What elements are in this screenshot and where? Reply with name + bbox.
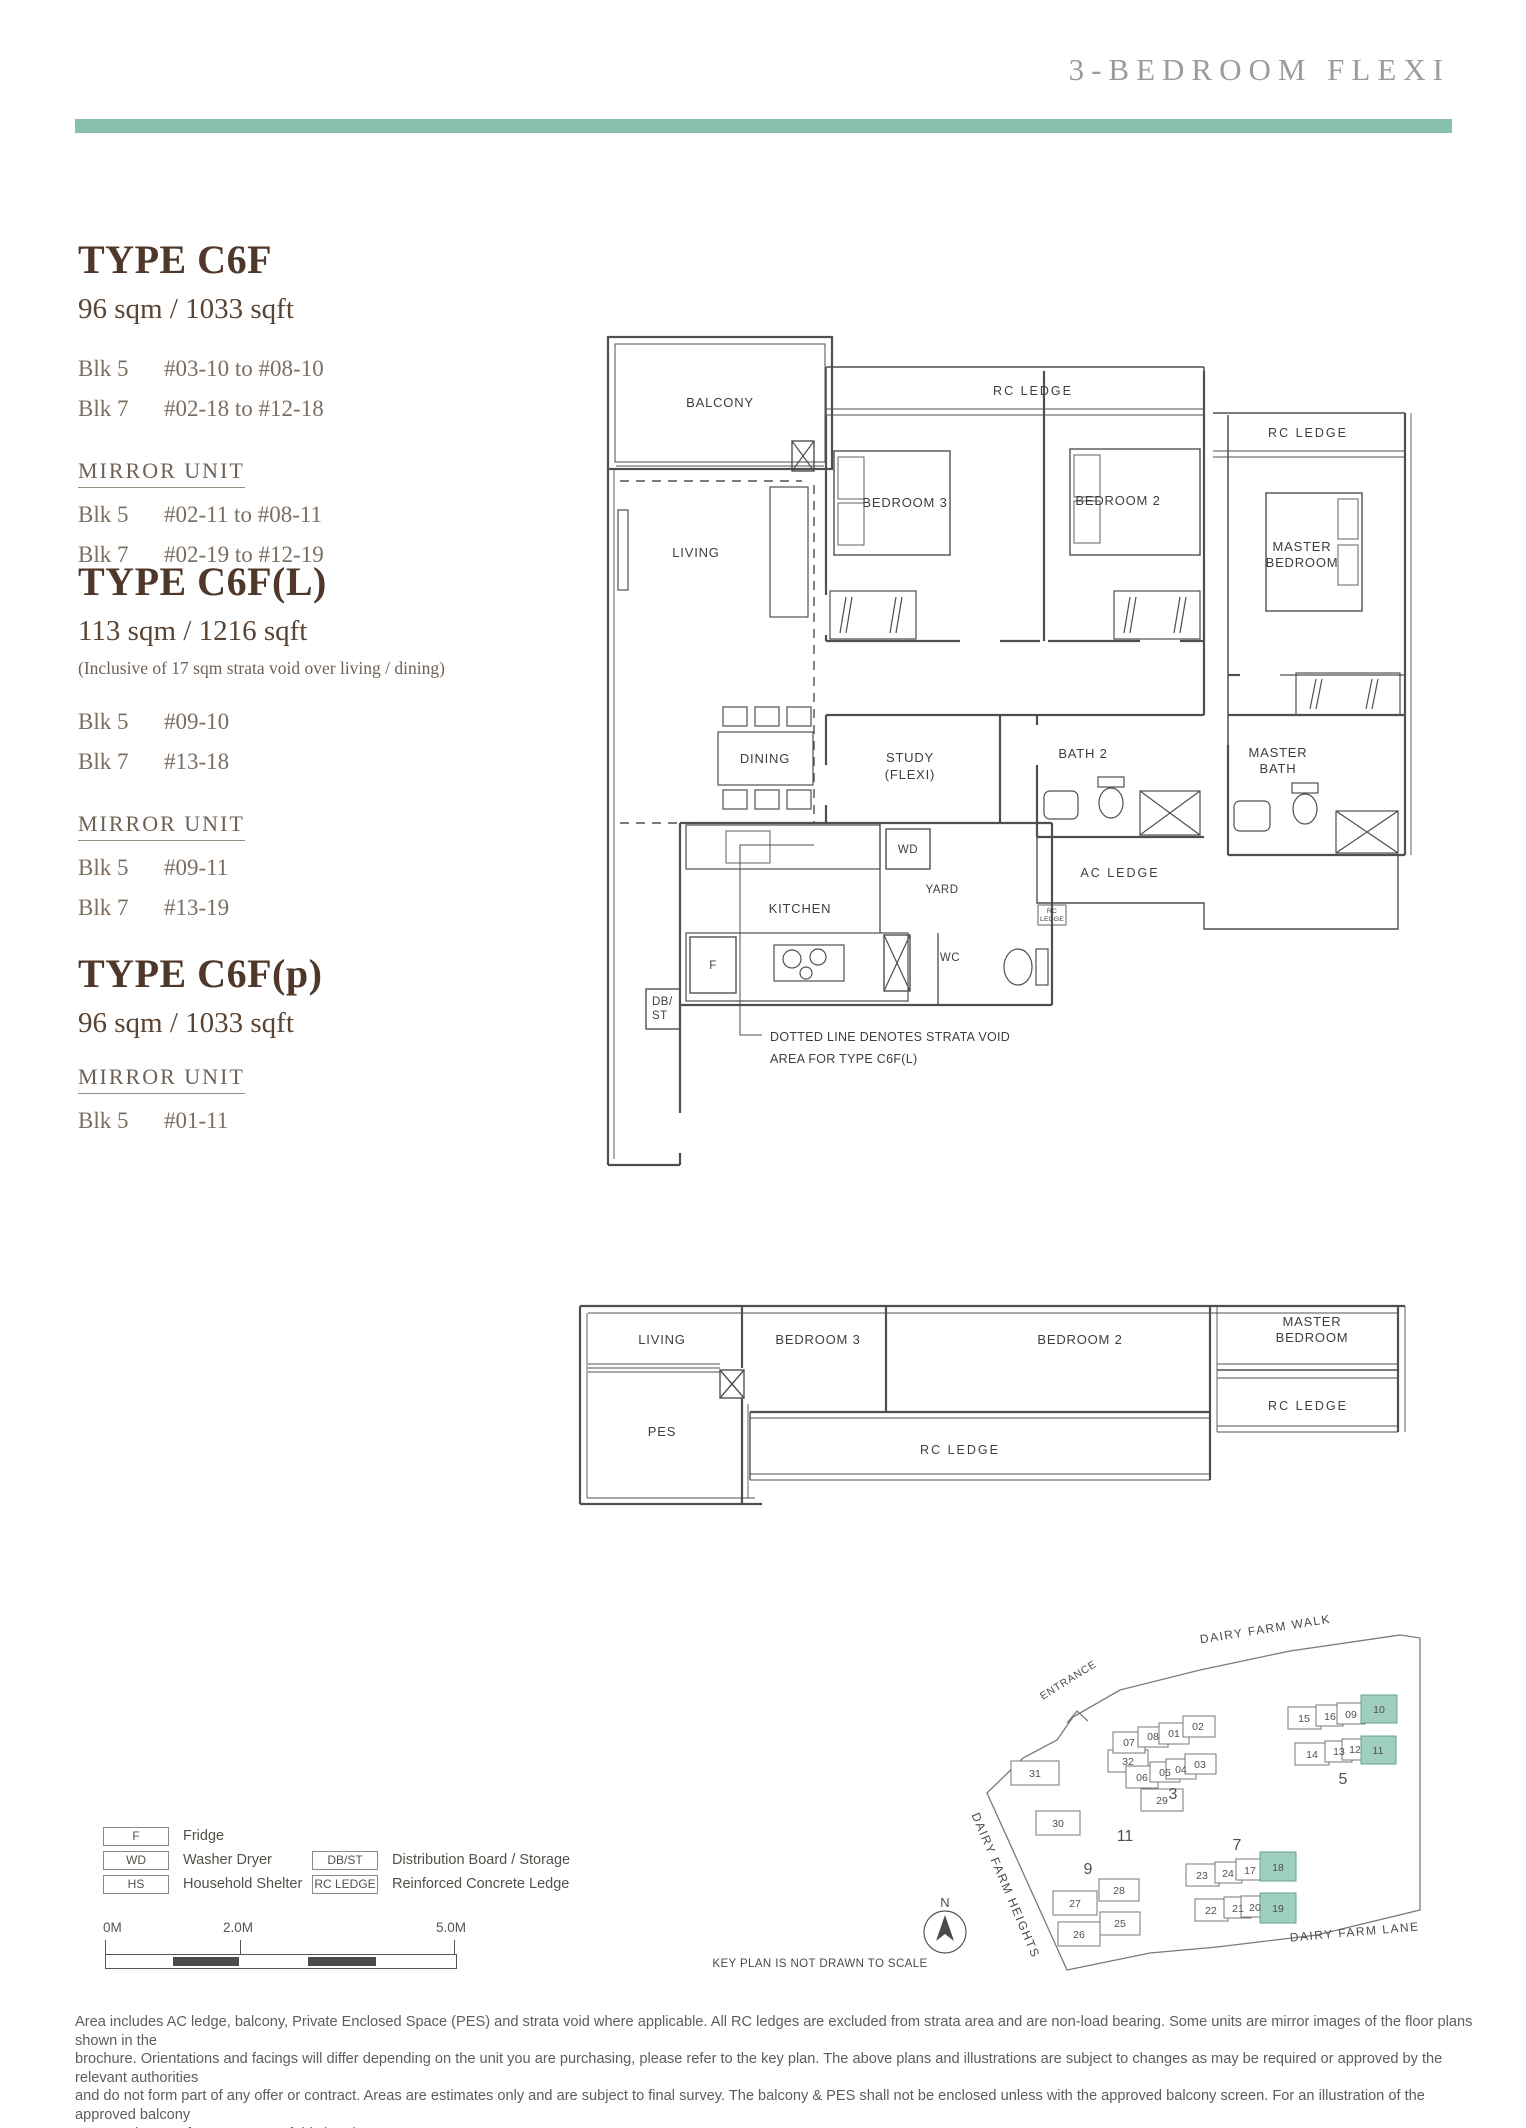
unit-list: Blk 5 #03-10 to #08-10 Blk 7 #02-18 to #…: [78, 356, 468, 422]
unit-01: 01: [1168, 1728, 1180, 1740]
legend-desc: Household Shelter: [183, 1876, 302, 1892]
page-title: 3-BEDROOM FLEXI: [1069, 52, 1450, 88]
unit-27: 27: [1069, 1898, 1081, 1910]
disclaimer: Area includes AC ledge, balcony, Private…: [75, 2013, 1475, 2128]
legend-desc: Fridge: [183, 1828, 224, 1844]
scale-bar-segment: [173, 1957, 239, 1966]
mirror-unit-list: Blk 5 #09-11 Blk 7 #13-19: [78, 855, 468, 921]
block-9-label: 9: [1084, 1861, 1093, 1878]
unit-range: #13-18: [164, 749, 229, 775]
wd-label: WD: [898, 844, 918, 856]
unit-row: Blk 5 #09-10: [78, 709, 468, 735]
rc-ledge-label-2: RC LEDGE: [1268, 426, 1348, 440]
unit-03: 03: [1194, 1759, 1206, 1771]
street-dairy-farm-lane: DAIRY FARM LANE: [1289, 1919, 1420, 1944]
fridge-label: F: [709, 960, 717, 972]
study-flexi-label: (FLEXI): [885, 767, 935, 782]
unit-20: 20: [1249, 1902, 1261, 1914]
brochure-page: 3-BEDROOM FLEXI TYPE C6F 96 sqm / 1033 s…: [0, 0, 1526, 2128]
living-label: LIVING: [638, 1332, 685, 1347]
unit-15: 15: [1298, 1713, 1310, 1725]
legend-code-box: HS: [103, 1875, 169, 1894]
rc-ledge-label-1: RC LEDGE: [993, 384, 1073, 398]
unit-17: 17: [1244, 1865, 1256, 1877]
unit-range: #03-10 to #08-10: [164, 356, 324, 382]
scale-tick: [454, 1940, 455, 1954]
master-bedroom-label-2: BEDROOM: [1276, 1330, 1349, 1345]
scale-bar-rule: [105, 1954, 457, 1969]
keyplan-caption: KEY PLAN IS NOT DRAWN TO SCALE: [712, 1958, 927, 1970]
main-floorplan: BALCONY LIVING DINING STUDY (FLEXI) KITC…: [440, 245, 1480, 1175]
room-labels: LIVING PES BEDROOM 3 BEDROOM 2 MASTER BE…: [638, 1314, 1348, 1457]
unit-range: #01-11: [164, 1108, 228, 1134]
unit-26: 26: [1073, 1929, 1085, 1941]
legend-desc: Washer Dryer: [183, 1852, 272, 1868]
master-bedroom-label-1: MASTER: [1283, 1314, 1342, 1329]
unit-24: 24: [1222, 1868, 1234, 1880]
street-dairy-farm-walk: DAIRY FARM WALK: [1199, 1612, 1332, 1647]
keyplan-block-9: 27 28 26 25 9: [1053, 1861, 1140, 1946]
pes-label: PES: [648, 1424, 676, 1439]
disclaimer-line: and do not form part of any offer or con…: [75, 2087, 1475, 2124]
unit-22: 22: [1205, 1905, 1217, 1917]
north-label: N: [940, 1895, 949, 1910]
legend-desc: Distribution Board / Storage: [392, 1852, 570, 1868]
unit-row: Blk 7 #02-18 to #12-18: [78, 396, 468, 422]
master-bedroom-label-2: BEDROOM: [1266, 555, 1339, 570]
block-3-label: 3: [1169, 1786, 1178, 1803]
shaft: [720, 1370, 744, 1398]
type-name: TYPE C6F: [78, 236, 468, 283]
disclaimer-line: screen, please refer to Annex 1 of this …: [75, 2125, 1475, 2128]
type-area: 96 sqm / 1033 sqft: [78, 1007, 468, 1040]
unit-row: Blk 5 #09-11: [78, 855, 468, 881]
north-compass-icon: N: [924, 1895, 966, 1953]
entrance-label: ENTRANCE: [1038, 1658, 1099, 1702]
strata-void-dashed-line: [620, 481, 814, 823]
mirror-unit-heading: MIRROR UNIT: [78, 811, 245, 841]
unit-range: #09-10: [164, 709, 229, 735]
unit-blk: Blk 7: [78, 749, 164, 775]
unit-10: 10: [1373, 1704, 1385, 1716]
unit-list: Blk 5 #09-10 Blk 7 #13-18: [78, 709, 468, 775]
unit-19: 19: [1272, 1903, 1284, 1915]
yard-label: YARD: [925, 884, 958, 896]
mirror-unit-heading: MIRROR UNIT: [78, 458, 245, 488]
unit-11: 11: [1373, 1745, 1384, 1757]
kitchen-label: KITCHEN: [769, 901, 832, 916]
legend-code-box: RC LEDGE: [312, 1875, 378, 1894]
unit-05: 05: [1159, 1767, 1171, 1779]
unit-range: #13-19: [164, 895, 229, 921]
bedroom2-label: BEDROOM 2: [1037, 1332, 1122, 1347]
legend-code-box: DB/ST: [312, 1851, 378, 1870]
scale-bar: 0M 2.0M 5.0M: [103, 1920, 483, 1975]
dbst-label-2: ST: [652, 1010, 668, 1022]
unit-16: 16: [1324, 1711, 1336, 1723]
keyplan-block-7: 23 24 17 18 22 21 20 19 7: [1186, 1837, 1296, 1923]
unit-06: 06: [1136, 1772, 1148, 1784]
unit-02: 02: [1192, 1721, 1204, 1733]
unit-blk: Blk 5: [78, 855, 164, 881]
dining-label: DINING: [740, 751, 790, 766]
mirror-unit-heading: MIRROR UNIT: [78, 1064, 245, 1094]
legend-code-box: F: [103, 1827, 169, 1846]
unit-13: 13: [1333, 1746, 1345, 1758]
fixtures-furniture: [618, 441, 1400, 1029]
balcony-label: BALCONY: [686, 395, 754, 410]
type-c6fp-block: TYPE C6F(p) 96 sqm / 1033 sqft MIRROR UN…: [78, 950, 468, 1134]
unit-30: 30: [1052, 1818, 1064, 1830]
study-label: STUDY: [886, 750, 934, 765]
unit-25: 25: [1114, 1918, 1126, 1930]
block-7-label: 7: [1233, 1837, 1242, 1854]
dbst-label-1: DB/: [652, 996, 673, 1008]
type-note: (Inclusive of 17 sqm strata void over li…: [78, 658, 468, 679]
unit-blk: Blk 7: [78, 895, 164, 921]
unit-blk: Blk 5: [78, 1108, 164, 1134]
scale-tick-label: 0M: [103, 1920, 122, 1935]
type-name: TYPE C6F(p): [78, 950, 468, 997]
note-leader-line: [740, 845, 814, 1035]
mirror-unit-list: Blk 5 #01-11: [78, 1108, 468, 1134]
unit-row: Blk 5 #01-11: [78, 1108, 468, 1134]
living-label: LIVING: [672, 545, 719, 560]
bedroom3-label: BEDROOM 3: [775, 1332, 860, 1347]
strata-void-note-1: DOTTED LINE DENOTES STRATA VOID: [770, 1030, 1010, 1044]
unit-blk: Blk 7: [78, 396, 164, 422]
type-name: TYPE C6F(L): [78, 558, 468, 605]
unit-31: 31: [1029, 1768, 1041, 1780]
type-c6fl-block: TYPE C6F(L) 113 sqm / 1216 sqft (Inclusi…: [78, 558, 468, 921]
unit-row: Blk 7 #13-18: [78, 749, 468, 775]
unit-04: 04: [1175, 1764, 1187, 1776]
legend-code-box: WD: [103, 1851, 169, 1870]
wc-label: WC: [940, 952, 960, 964]
type-area: 96 sqm / 1033 sqft: [78, 293, 468, 326]
unit-blk: Blk 5: [78, 356, 164, 382]
block-11-label: 11: [1117, 1828, 1134, 1845]
bath2-label: BATH 2: [1058, 746, 1107, 761]
unit-row: Blk 5 #02-11 to #08-11: [78, 502, 468, 528]
unit-29: 29: [1156, 1795, 1168, 1807]
rc-ledge-label-2: RC LEDGE: [1268, 1399, 1348, 1413]
rc-ledge-small-label-2: LEDGE: [1040, 916, 1064, 923]
unit-blk: Blk 5: [78, 709, 164, 735]
scale-tick-label: 2.0M: [223, 1920, 253, 1935]
unit-14: 14: [1306, 1749, 1318, 1761]
disclaimer-line: brochure. Orientations and facings will …: [75, 2050, 1475, 2087]
bedroom3-label: BEDROOM 3: [862, 495, 947, 510]
keyplan-block-5: 15 16 09 10 14 13 12 11 5: [1288, 1695, 1397, 1788]
type-area: 113 sqm / 1216 sqft: [78, 615, 468, 648]
scale-tick: [240, 1940, 241, 1954]
unit-blk: Blk 5: [78, 502, 164, 528]
pes-floorplan: LIVING PES BEDROOM 3 BEDROOM 2 MASTER BE…: [440, 1260, 1480, 1520]
unit-range: #09-11: [164, 855, 228, 881]
master-bath-label-2: BATH: [1260, 761, 1297, 776]
master-bedroom-label-1: MASTER: [1273, 539, 1332, 554]
scale-tick: [105, 1940, 106, 1954]
unit-range: #02-18 to #12-18: [164, 396, 324, 422]
key-plan: DAIRY FARM WALK DAIRY FARM HEIGHTS DAIRY…: [640, 1565, 1526, 1985]
scale-tick-label: 5.0M: [436, 1920, 466, 1935]
unit-08: 08: [1147, 1731, 1159, 1743]
unit-28: 28: [1113, 1885, 1125, 1897]
master-bath-label-1: MASTER: [1249, 745, 1308, 760]
scale-bar-segment: [308, 1957, 376, 1966]
unit-12: 12: [1349, 1744, 1361, 1756]
unit-range: #02-11 to #08-11: [164, 502, 322, 528]
unit-07: 07: [1123, 1737, 1135, 1749]
unit-23: 23: [1196, 1870, 1208, 1882]
ac-ledge-label: AC LEDGE: [1080, 866, 1159, 880]
unit-row: Blk 5 #03-10 to #08-10: [78, 356, 468, 382]
unit-18: 18: [1272, 1862, 1284, 1874]
type-c6f-block: TYPE C6F 96 sqm / 1033 sqft Blk 5 #03-10…: [78, 236, 468, 568]
unit-21: 21: [1232, 1903, 1244, 1915]
bedroom2-label: BEDROOM 2: [1075, 493, 1160, 508]
rc-ledge-small-label-1: RC: [1047, 908, 1057, 915]
unit-row: Blk 7 #13-19: [78, 895, 468, 921]
unit-09: 09: [1345, 1709, 1357, 1721]
block-5-label: 5: [1339, 1771, 1348, 1788]
disclaimer-line: Area includes AC ledge, balcony, Private…: [75, 2013, 1475, 2050]
legend-desc: Reinforced Concrete Ledge: [392, 1876, 569, 1892]
strata-void-note-2: AREA FOR TYPE C6F(L): [770, 1052, 917, 1066]
rc-ledge-label-1: RC LEDGE: [920, 1443, 1000, 1457]
accent-bar: [75, 119, 1452, 133]
